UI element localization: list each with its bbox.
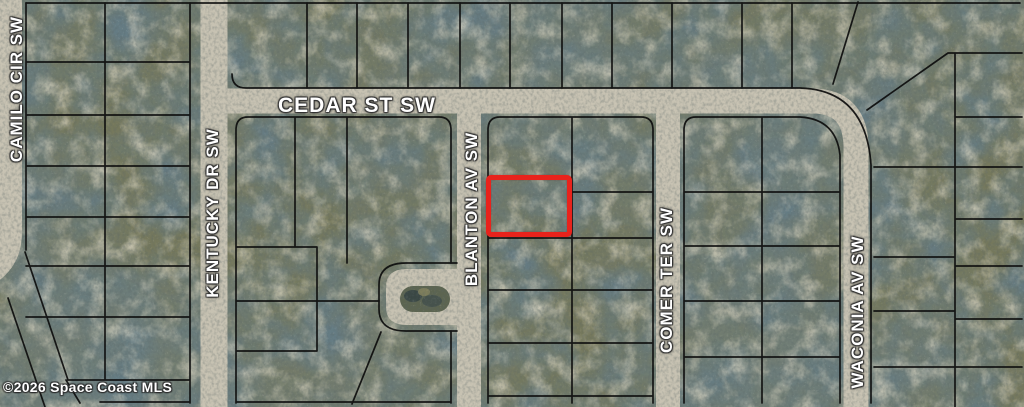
street-label-blanton-av: BLANTON AV SW	[462, 132, 482, 286]
street-label-kentucky-dr: KENTUCKY DR SW	[203, 128, 223, 298]
street-label-waconia-av: WACONIA AV SW	[848, 235, 868, 388]
street-label-camilo-cir: CAMILO CIR SW	[7, 16, 27, 162]
highlighted-parcel	[486, 175, 572, 237]
street-label-comer-ter: COMER TER SW	[657, 207, 677, 353]
parcel-map: CAMILO CIR SW KENTUCKY DR SW CEDAR ST SW…	[0, 0, 1024, 407]
street-label-cedar-st: CEDAR ST SW	[278, 94, 436, 118]
copyright-watermark: ©2026 Space Coast MLS	[3, 379, 172, 395]
